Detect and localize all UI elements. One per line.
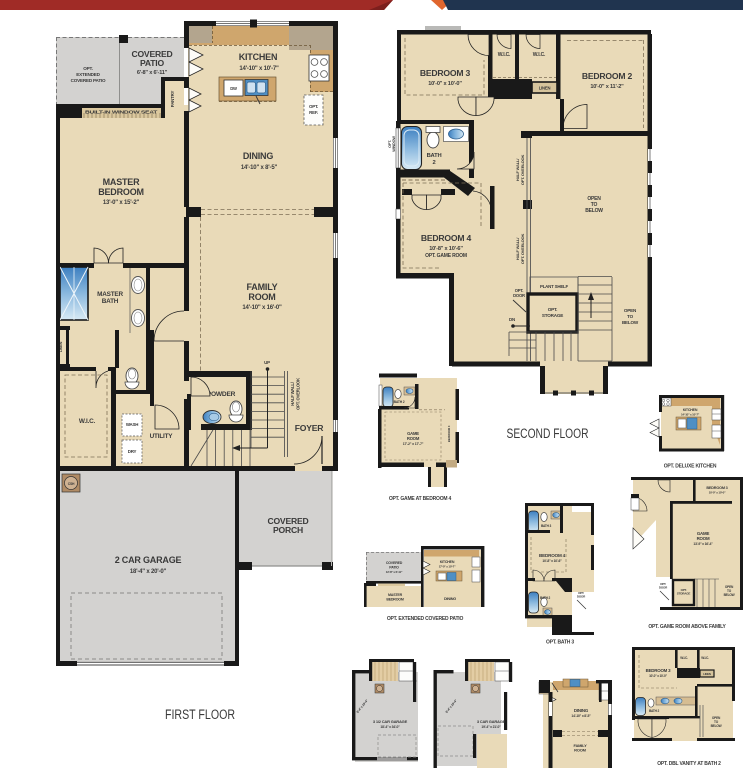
svg-text:KITCHEN: KITCHEN (440, 560, 455, 564)
svg-text:UTILITY: UTILITY (150, 433, 174, 440)
svg-text:10'-0" x 11'-2": 10'-0" x 11'-2" (590, 84, 624, 90)
svg-text:18'-4" x 20'-0": 18'-4" x 20'-0" (130, 569, 167, 575)
svg-text:BEDROOM 3: BEDROOM 3 (706, 486, 727, 490)
svg-text:14'-10" x 10'-7": 14'-10" x 10'-7" (239, 66, 279, 72)
svg-text:BEDROOM 3: BEDROOM 3 (646, 668, 672, 673)
svg-text:DINING: DINING (444, 597, 456, 601)
svg-text:BATH 3: BATH 3 (541, 524, 552, 528)
svg-text:BEDROOM 2: BEDROOM 2 (582, 71, 633, 81)
svg-text:STORAGE: STORAGE (542, 313, 563, 318)
svg-text:SECOND FLOOR: SECOND FLOOR (507, 426, 589, 441)
svg-text:DOOR: DOOR (577, 595, 586, 599)
svg-text:10'-0" x 10'-0": 10'-0" x 10'-0" (709, 491, 726, 495)
svg-text:PATIO: PATIO (140, 58, 164, 68)
svg-text:W.I.C.: W.I.C. (79, 418, 96, 425)
svg-text:BEDROOM 3: BEDROOM 3 (420, 68, 471, 78)
svg-text:KITCHEN: KITCHEN (239, 52, 278, 62)
svg-text:FAMILY: FAMILY (247, 282, 278, 292)
svg-text:14'-10" x 16'-0": 14'-10" x 16'-0" (242, 305, 282, 311)
svg-text:OPEN: OPEN (624, 308, 637, 313)
svg-text:OPT.: OPT. (309, 104, 318, 109)
svg-text:OPT.: OPT. (83, 66, 92, 71)
svg-text:OPT. BATH 3: OPT. BATH 3 (546, 640, 574, 646)
svg-text:EXTENDED: EXTENDED (76, 72, 100, 77)
svg-text:COVERED: COVERED (386, 561, 403, 565)
svg-text:OPT. DBL VANITY AT BATH 2: OPT. DBL VANITY AT BATH 2 (657, 761, 721, 767)
svg-text:WINDOW: WINDOW (392, 136, 396, 152)
svg-text:DINING: DINING (574, 708, 589, 713)
svg-text:OPT. GAME ROOM ABOVE FAMILY: OPT. GAME ROOM ABOVE FAMILY (648, 624, 726, 630)
svg-text:10'-0" x 10'-0": 10'-0" x 10'-0" (649, 674, 668, 678)
svg-text:DOOR: DOOR (513, 293, 525, 298)
svg-text:17'-2" x 17'-7": 17'-2" x 17'-7" (403, 442, 424, 446)
svg-text:BELOW: BELOW (711, 724, 722, 728)
svg-text:PANTRY: PANTRY (170, 91, 175, 108)
svg-text:OPT. OVERLOOK: OPT. OVERLOOK (520, 155, 525, 186)
svg-text:DN: DN (509, 317, 515, 322)
svg-text:BATH 2: BATH 2 (540, 596, 551, 600)
svg-text:MASTER: MASTER (97, 291, 123, 298)
svg-text:18'-4" x 34'-0": 18'-4" x 34'-0" (380, 725, 400, 729)
svg-text:12'-8" x 6'-11": 12'-8" x 6'-11" (386, 570, 403, 574)
svg-text:DOOR: DOOR (659, 586, 668, 590)
svg-text:OPT. DELUXE KITCHEN: OPT. DELUXE KITCHEN (664, 464, 717, 470)
svg-text:W.I.C.: W.I.C. (533, 52, 546, 58)
svg-text:3 CAR GARAGE: 3 CAR GARAGE (477, 719, 506, 724)
svg-text:19'-4" x 21'-0": 19'-4" x 21'-0" (481, 725, 501, 729)
svg-text:OPT. OVERLOOK: OPT. OVERLOOK (520, 234, 525, 265)
svg-text:OPT. GAME ROOM: OPT. GAME ROOM (425, 253, 467, 259)
svg-text:BELOW: BELOW (724, 593, 735, 597)
svg-text:ROOM: ROOM (407, 436, 420, 441)
svg-text:FIRST FLOOR: FIRST FLOOR (165, 707, 235, 722)
svg-text:14'-10" x 8'-5": 14'-10" x 8'-5" (241, 165, 278, 171)
svg-text:13'-9" x 16'-4": 13'-9" x 16'-4" (693, 542, 713, 546)
svg-text:UP: UP (264, 360, 270, 365)
svg-text:FOYER: FOYER (295, 423, 325, 433)
svg-text:W.I.C.: W.I.C. (701, 656, 709, 660)
svg-text:BUILT-IN WINDOW SEAT: BUILT-IN WINDOW SEAT (85, 110, 158, 115)
svg-text:ROOM: ROOM (248, 292, 275, 302)
svg-text:10'-0" x 10'-0": 10'-0" x 10'-0" (428, 81, 462, 87)
svg-text:LINEN: LINEN (539, 86, 551, 91)
svg-text:DINING: DINING (243, 151, 273, 161)
svg-text:LINEN: LINEN (703, 672, 711, 676)
svg-text:BEDROOM 4: BEDROOM 4 (421, 233, 472, 243)
svg-text:6'-8" x 6'-11": 6'-8" x 6'-11" (137, 70, 168, 76)
svg-text:OPT. EXTENDED COVERED PATIO: OPT. EXTENDED COVERED PATIO (387, 616, 464, 622)
svg-text:OPT. GAME AT BEDROOM 4: OPT. GAME AT BEDROOM 4 (389, 496, 452, 502)
svg-text:BATH 2: BATH 2 (394, 400, 405, 404)
svg-text:BEDROOM: BEDROOM (386, 598, 404, 602)
svg-text:MASTER: MASTER (388, 593, 403, 597)
svg-text:14'-10" x 8'-5": 14'-10" x 8'-5" (571, 714, 591, 718)
svg-text:OPT.: OPT. (548, 307, 557, 312)
svg-text:PLANT SHELF: PLANT SHELF (540, 284, 569, 289)
svg-text:POWDER: POWDER (207, 391, 236, 398)
svg-text:DRY: DRY (128, 449, 137, 454)
svg-text:BEDROOM 3: BEDROOM 3 (447, 425, 451, 442)
svg-text:ROOM: ROOM (574, 748, 587, 753)
svg-text:W.I.C.: W.I.C. (498, 52, 511, 58)
svg-text:KITCHEN: KITCHEN (683, 408, 698, 412)
svg-text:WASH: WASH (126, 422, 138, 427)
svg-text:10'-8" x 10'-6": 10'-8" x 10'-6" (429, 246, 463, 252)
svg-text:W.I.C.: W.I.C. (680, 656, 688, 660)
svg-text:REF.: REF. (309, 110, 318, 115)
svg-text:BATH: BATH (102, 298, 119, 305)
svg-text:2: 2 (432, 160, 435, 166)
svg-text:COVERED PATIO: COVERED PATIO (71, 78, 106, 83)
svg-text:DW: DW (230, 86, 237, 91)
svg-text:MASTER: MASTER (103, 177, 141, 187)
svg-text:17'-0" x 10'-7": 17'-0" x 10'-7" (439, 565, 456, 569)
svg-text:3 1/2 CAR GARAGE: 3 1/2 CAR GARAGE (373, 719, 408, 724)
svg-text:TO: TO (627, 314, 634, 319)
svg-text:10'-8" x 10'-6": 10'-8" x 10'-6" (542, 559, 562, 563)
svg-text:13'-0" x 15'-2": 13'-0" x 15'-2" (103, 200, 140, 206)
svg-text:PATIO: PATIO (389, 566, 399, 570)
svg-text:BEDROOM 4: BEDROOM 4 (539, 553, 566, 558)
svg-text:BATH: BATH (427, 153, 442, 159)
svg-text:BATH 2: BATH 2 (649, 709, 660, 713)
svg-text:OPT. OVERLOOK: OPT. OVERLOOK (296, 378, 301, 410)
svg-text:BELOW: BELOW (622, 320, 639, 325)
svg-text:BELOW: BELOW (585, 208, 603, 214)
svg-text:HALF WALL/: HALF WALL/ (290, 381, 295, 405)
svg-text:CSH: CSH (68, 482, 75, 486)
svg-text:BEDROOM: BEDROOM (98, 187, 144, 197)
svg-text:ROOM: ROOM (697, 536, 710, 541)
svg-text:2 CAR GARAGE: 2 CAR GARAGE (115, 555, 182, 565)
svg-text:14'-10" x 10'-7": 14'-10" x 10'-7" (681, 413, 700, 417)
svg-text:STORAGE: STORAGE (677, 592, 691, 596)
svg-text:PORCH: PORCH (273, 525, 303, 535)
